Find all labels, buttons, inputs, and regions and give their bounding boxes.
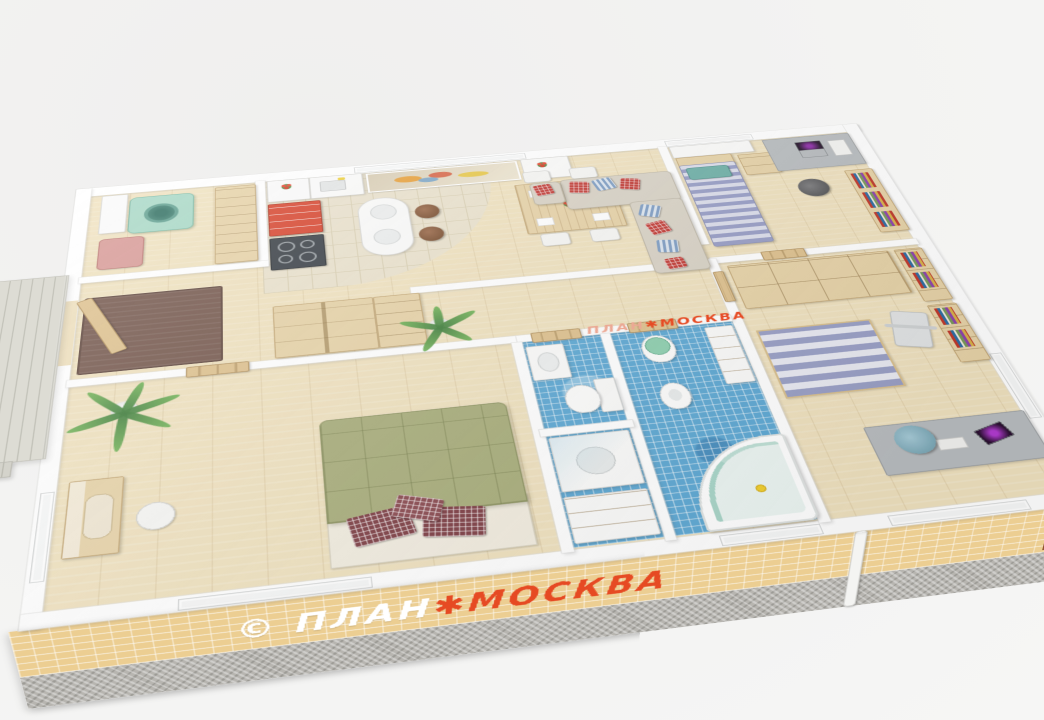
- desk-drawers: [827, 139, 853, 155]
- burner-2: [300, 239, 315, 249]
- house-cutaway: ПЛАН✱МОСКВА: [19, 124, 1044, 631]
- place-setting-1: [528, 189, 547, 198]
- front-watermark-copyright: ©: [236, 612, 279, 646]
- burner-3: [278, 254, 293, 264]
- kitchen-cabinet-a: [267, 178, 311, 203]
- art-detail-4: [418, 177, 439, 183]
- bar-counter: [356, 196, 416, 258]
- kitchen-flowers: [280, 183, 293, 190]
- burner-1: [277, 241, 295, 253]
- kitchen-sink: [319, 180, 346, 192]
- place-setting-3: [536, 217, 555, 226]
- pillow-blue-2: [638, 204, 661, 218]
- books-1: [850, 172, 877, 188]
- laundry-wall-cabinet: [98, 194, 129, 234]
- books-3: [874, 211, 901, 228]
- deck-step-1: [0, 461, 13, 497]
- pillow-blue-3: [656, 240, 679, 253]
- washing-machine-drum: [143, 202, 178, 224]
- bar-counter-top-2: [373, 228, 402, 246]
- washing-machine: [127, 193, 194, 234]
- laundry-basket: [96, 236, 144, 271]
- laptop-base: [799, 148, 829, 158]
- place-setting-4: [592, 212, 611, 221]
- render-canvas: ПЛАН✱МОСКВА: [0, 0, 1044, 720]
- front-watermark-star: ✱: [433, 589, 470, 622]
- art-detail-3: [457, 170, 489, 178]
- books-5: [912, 271, 939, 288]
- place-setting-2: [582, 185, 601, 193]
- scene: ПЛАН✱МОСКВА: [0, 0, 1044, 720]
